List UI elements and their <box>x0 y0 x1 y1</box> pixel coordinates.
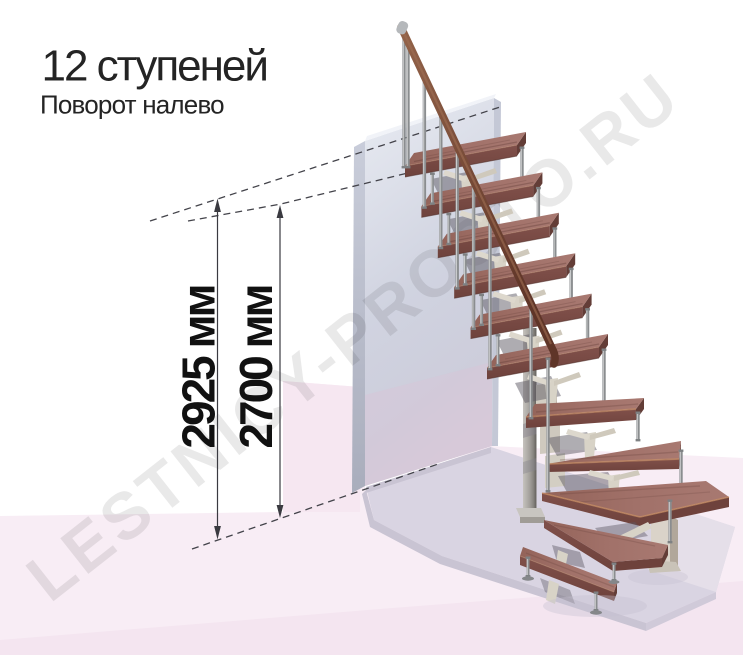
svg-text:12 ступеней: 12 ступеней <box>42 42 267 91</box>
svg-text:2700 мм: 2700 мм <box>230 286 282 448</box>
svg-text:Поворот налево: Поворот налево <box>40 90 224 120</box>
svg-text:2925 мм: 2925 мм <box>173 286 225 448</box>
